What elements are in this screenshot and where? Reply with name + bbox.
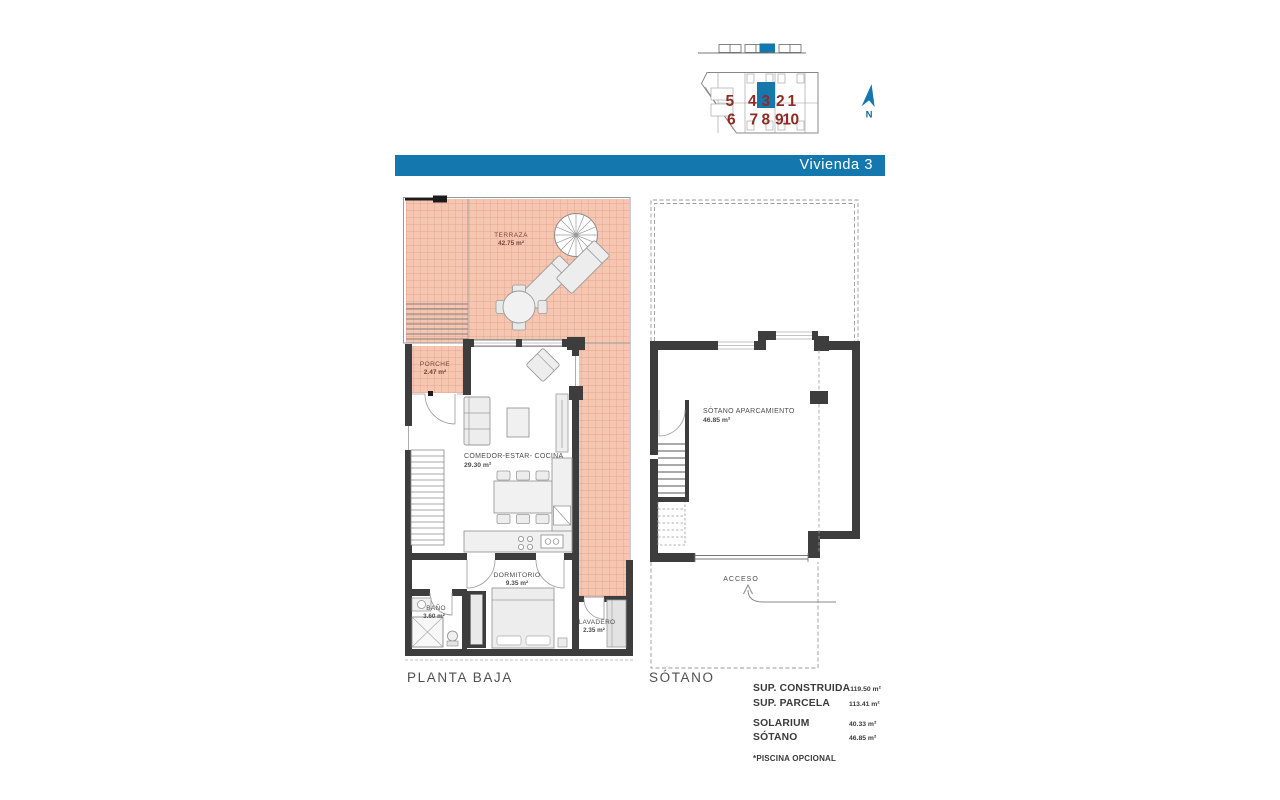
sotano-plan: SÓTANO APARCAMIENTO 46.85 m² ACCESO (640, 190, 890, 690)
room-label-aparcamiento: SÓTANO APARCAMIENTO (703, 406, 795, 415)
summary-value: 113.41 m² (849, 701, 885, 708)
site-unit-numbers: 5 4 3 2 1 6 7 8 9 10 (725, 93, 798, 129)
room-label-dormitorio: DORMITORIO (493, 572, 540, 579)
unit-number: 8 (761, 112, 770, 129)
site-plan: 5 4 3 2 1 6 7 8 9 10 N (688, 30, 893, 142)
summary-row: SUP. CONSTRUIDA 119.50 m² (753, 683, 885, 694)
summary-label: SOLARIUM (753, 718, 849, 729)
bedroom-furniture (467, 588, 567, 648)
summary-row: SUP. PARCELA 113.41 m² (753, 698, 885, 709)
planta-baja-plan: TERRAZA 42.75 m² PORCHE 2.47 m² (395, 190, 645, 680)
unit-number: 7 (749, 112, 757, 129)
summary-row: SOLARIUM 40.33 m² (753, 718, 885, 729)
north-arrow-icon: N (862, 83, 879, 120)
summary-value: 40.33 m² (849, 721, 885, 728)
unit-number: 2 (776, 93, 784, 110)
room-area-aparcamiento: 46.85 m² (703, 417, 731, 424)
summary-label: SUP. CONSTRUIDA (753, 683, 850, 694)
room-area-bano: 3.60 m² (423, 613, 445, 620)
room-area-comedor: 29.30 m² (464, 462, 492, 469)
summary-value: 119.50 m² (850, 686, 885, 693)
caption-planta-baja: PLANTA BAJA (407, 670, 513, 685)
room-area-porche: 2.47 m² (424, 369, 447, 376)
banner-title: Vivienda 3 (800, 155, 885, 176)
elevation-highlight-unit (760, 44, 776, 53)
room-label-terraza: TERRAZA (494, 232, 528, 239)
room-label-porche: PORCHE (420, 361, 450, 368)
garage-pillar (810, 391, 828, 404)
unit-number: 5 (725, 93, 734, 110)
north-label: N (866, 110, 873, 121)
room-area-lavadero: 2.35 m² (583, 627, 605, 634)
garage-door (695, 553, 808, 562)
room-label-lavadero: LAVADERO (579, 619, 616, 626)
stairs-interior (411, 450, 444, 545)
summary-table: SUP. CONSTRUIDA 119.50 m² SUP. PARCELA 1… (753, 683, 885, 763)
title-banner: Vivienda 3 (395, 155, 885, 176)
summary-label: SÓTANO (753, 732, 849, 743)
sotano-dashed-outline (651, 200, 858, 668)
room-labels-sotano: SÓTANO APARCAMIENTO 46.85 m² ACCESO (703, 406, 795, 583)
room-area-dormitorio: 9.35 m² (506, 580, 529, 587)
site-elevation-strip (698, 44, 806, 54)
unit-number: 6 (727, 112, 736, 129)
summary-label: SUP. PARCELA (753, 698, 849, 709)
room-label-comedor: COMEDOR-ESTAR- COCINA (464, 453, 564, 460)
unit-number: 10 (782, 112, 798, 129)
room-label-bano: BAÑO (426, 603, 446, 612)
room-area-terraza: 42.75 m² (498, 240, 525, 247)
unit-number: 1 (787, 93, 796, 110)
caption-sotano: SÓTANO (649, 670, 715, 685)
summary-footnote: *PISCINA OPCIONAL (753, 754, 885, 763)
stairs-sotano (658, 410, 685, 545)
walls-sotano (650, 331, 860, 562)
unit-number: 4 (748, 93, 757, 110)
summary-value: 46.85 m² (849, 735, 885, 742)
unit-number: 3 (761, 93, 770, 110)
site-outline (702, 73, 819, 134)
room-label-acceso: ACCESO (723, 576, 759, 583)
floorplan-sheet: 5 4 3 2 1 6 7 8 9 10 N Vivienda 3 (0, 0, 1280, 800)
access-arrow (744, 585, 837, 602)
summary-row: SÓTANO 46.85 m² (753, 732, 885, 743)
